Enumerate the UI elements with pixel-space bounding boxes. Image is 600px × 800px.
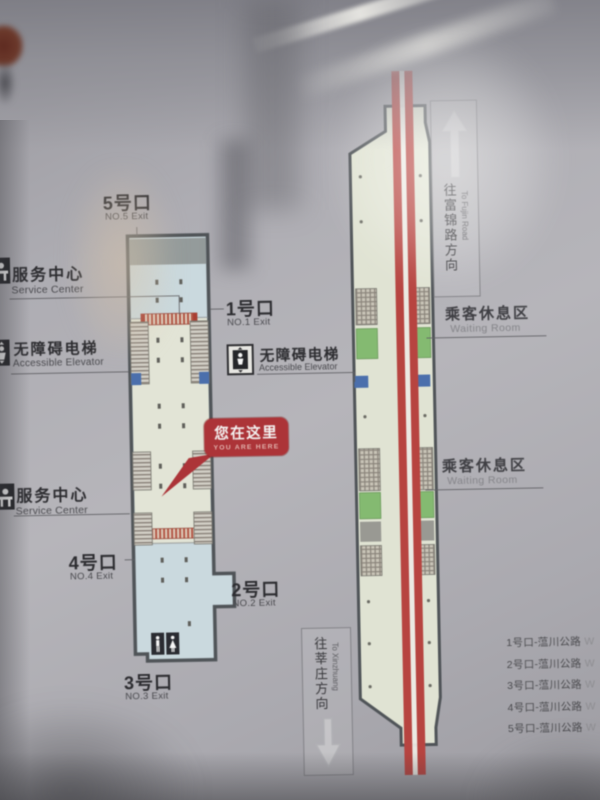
you-are-here-en: YOU ARE HERE (204, 443, 288, 452)
label-accessible-elevator-mid-en: Accessible Elevator (259, 361, 338, 373)
callout-exit5 (136, 227, 137, 236)
map-sign-content: 5号口 NO.5 Exit 1号口 NO.1 Exit 2号口 NO.2 Exi… (0, 0, 600, 800)
direction-north-cn: 往富锦路方向 (439, 183, 460, 273)
direction-north-box: 往富锦路方向 To Fujin Road (430, 100, 481, 298)
you-are-here-marker: 您在这里 YOU ARE HERE (204, 417, 289, 457)
exit-street-row: 5号口-蕰川公路 W (508, 717, 600, 740)
label-waiting-room-lower-en: Waiting Room (447, 474, 518, 487)
callout-elevator-mid-v (354, 372, 355, 382)
service-center-icon (0, 258, 10, 284)
callout-exit4 (125, 559, 135, 560)
escalator-symbol-lower (145, 528, 201, 539)
label-service-center-upper-cn: 服务中心 (12, 260, 84, 285)
accessible-elevator-icon-mid (227, 344, 255, 376)
non-public-area (129, 238, 205, 265)
direction-south-box: 往莘庄方向 To Xinzhuang (301, 627, 354, 776)
exit-street-row: 4号口-蕰川公路 W (507, 696, 600, 719)
label-service-center-lower-en: Service Center (16, 504, 88, 517)
exit-street-row: 1号口-蕰川公路 W (506, 631, 600, 654)
down-arrow-icon (313, 716, 344, 772)
escalator-symbol-upper (141, 313, 197, 325)
up-arrow-icon (439, 109, 470, 180)
label-exit5-en: NO.5 Exit (105, 211, 149, 223)
elevator-marker-left (131, 373, 141, 385)
callout-waiting-room-upper (426, 335, 546, 338)
label-service-center-upper-en: Service Center (11, 283, 83, 296)
direction-south-en: To Xinzhuang (330, 642, 340, 691)
exit-street-row: 3号口-蕰川公路 W (507, 674, 600, 697)
label-waiting-room-upper-en: Waiting Room (450, 322, 521, 335)
exit-street-list: 1号口-蕰川公路 W 2号口-蕰川公路 W 3号口-蕰川公路 W 4号口-蕰川公… (506, 631, 600, 740)
callout-elevator-left (11, 371, 129, 374)
label-accessible-elevator-left-en: Accessible Elevator (13, 357, 104, 370)
label-exit4-en: NO.4 Exit (70, 571, 114, 583)
label-waiting-room-lower-cn: 乘客休息区 (442, 454, 527, 477)
direction-north-en: To Fujin Road (460, 191, 470, 241)
label-exit1-en: NO.1 Exit (227, 317, 271, 329)
direction-south-cn: 往莘庄方向 (310, 636, 330, 711)
exit-street-row: 2号口-蕰川公路 W (507, 653, 600, 676)
service-center-icon-lower (0, 483, 15, 509)
accessible-elevator-icon-left (0, 340, 10, 366)
label-service-center-lower-cn: 服务中心 (16, 481, 88, 506)
station-map-photo: 5号口 NO.5 Exit 1号口 NO.1 Exit 2号口 NO.2 Exi… (0, 0, 600, 800)
you-are-here-tail (153, 451, 224, 500)
elevator-marker-right (199, 372, 209, 384)
you-are-here-cn: 您在这里 (204, 421, 288, 444)
label-exit3-en: NO.3 Exit (125, 691, 169, 703)
label-exit2-en: NO.2 Exit (232, 597, 276, 609)
